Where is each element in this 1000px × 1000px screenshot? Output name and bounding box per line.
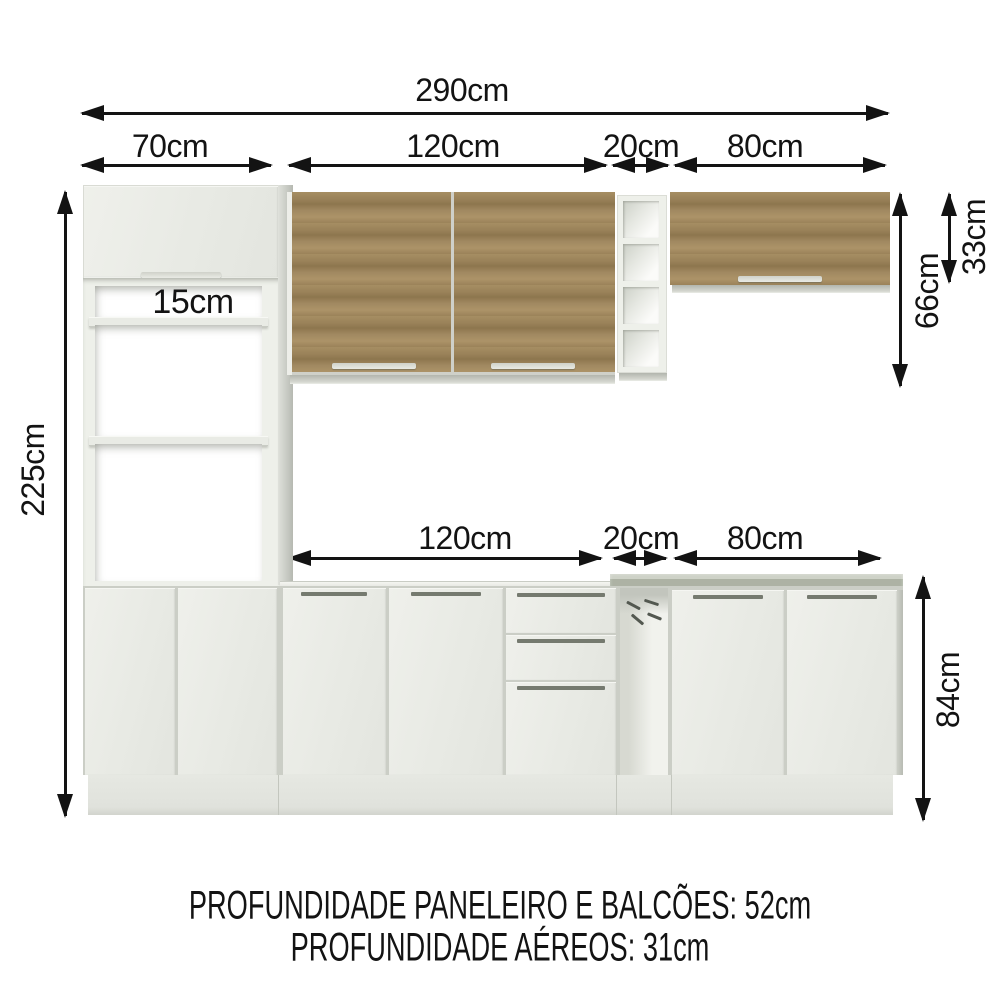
kitchen-dimension-diagram: 290cm 70cm 120cm 20cm 80cm 120cm 20cm 80…: [0, 0, 1000, 1000]
label-84: 84cm: [932, 652, 964, 728]
nicho-aereo-shadow: [619, 373, 667, 381]
stemware-rack-mark: [644, 599, 659, 606]
label-33: 33cm: [958, 199, 990, 275]
balcao-right-side-panel: [897, 590, 903, 775]
aereo-80-cabinet: [670, 192, 890, 285]
balcao-door-3: [283, 588, 386, 775]
label-total-width: 290cm: [415, 74, 509, 106]
plinth-seam: [671, 775, 672, 815]
label-mid-120: 120cm: [418, 522, 512, 554]
balcao-door-4-handle: [411, 592, 481, 596]
aereo-80-shadow: [672, 285, 890, 293]
label-66: 66cm: [911, 253, 943, 329]
stemware-rack-mark: [631, 614, 644, 626]
stemware-rack-mark: [647, 612, 662, 620]
balcao-drawer-2-handle: [517, 639, 605, 643]
paneleiro-top-door: [84, 186, 278, 277]
label-mid-80: 80cm: [727, 522, 803, 554]
plinth-seam: [278, 775, 279, 815]
label-top-80: 80cm: [727, 130, 803, 162]
aereo-80-door-handle: [738, 276, 822, 282]
balcao-door-3-handle: [301, 592, 367, 596]
label-total-height: 225cm: [17, 423, 49, 517]
balcao-drawer-1-handle: [517, 593, 605, 597]
aereo-120-shadow: [290, 375, 615, 384]
balcao-drawer-3: [506, 682, 616, 775]
nicho-aereo-unit: [617, 195, 667, 373]
label-top-120: 120cm: [406, 130, 500, 162]
nicho-cubby-4: [623, 330, 659, 367]
balcao-door-4: [389, 588, 503, 775]
nicho-cubby-2: [623, 244, 659, 281]
plinth: [88, 775, 893, 815]
paneleiro-interior: [83, 278, 280, 588]
dim-arrow-66: [892, 192, 908, 388]
label-top-70: 70cm: [132, 130, 208, 162]
dim-arrow-84: [915, 575, 931, 822]
aereo-120-door-left: [292, 192, 451, 372]
plinth-seam: [616, 775, 617, 815]
aereo-120-cabinet: [287, 192, 615, 375]
paneleiro-niche-54: [95, 444, 262, 581]
dim-arrow-total-height: [57, 190, 73, 818]
balcao-door-6: [787, 590, 897, 775]
balcao-open-slot: [620, 588, 668, 775]
stemware-rack-mark: [626, 601, 641, 611]
footer-note-depth-aereo: PROFUNDIDADE AÉREOS: 31cm: [291, 926, 710, 971]
balcao-door-6-handle: [807, 595, 877, 599]
paneleiro-niche-37: [95, 325, 262, 436]
aereo-120-door-right: [454, 192, 615, 372]
balcao-door-5: [672, 590, 784, 775]
balcao-door-2: [178, 588, 277, 775]
label-15: 15cm: [152, 285, 233, 319]
label-top-20: 20cm: [603, 130, 679, 162]
nicho-cubby-1: [623, 201, 659, 238]
aereo-120-door-right-handle: [491, 363, 575, 369]
balcao-door-1: [85, 588, 175, 775]
aereo-120-door-left-handle: [332, 363, 416, 369]
nicho-cubby-3: [623, 287, 659, 324]
label-mid-20: 20cm: [603, 522, 679, 554]
balcao-drawer-3-handle: [517, 686, 605, 690]
footer-note-depth-balcao: PROFUNDIDADE PANELEIRO E BALCÕES: 52cm: [189, 884, 811, 929]
balcao-row: [83, 586, 903, 775]
balcao-door-5-handle: [693, 595, 763, 599]
